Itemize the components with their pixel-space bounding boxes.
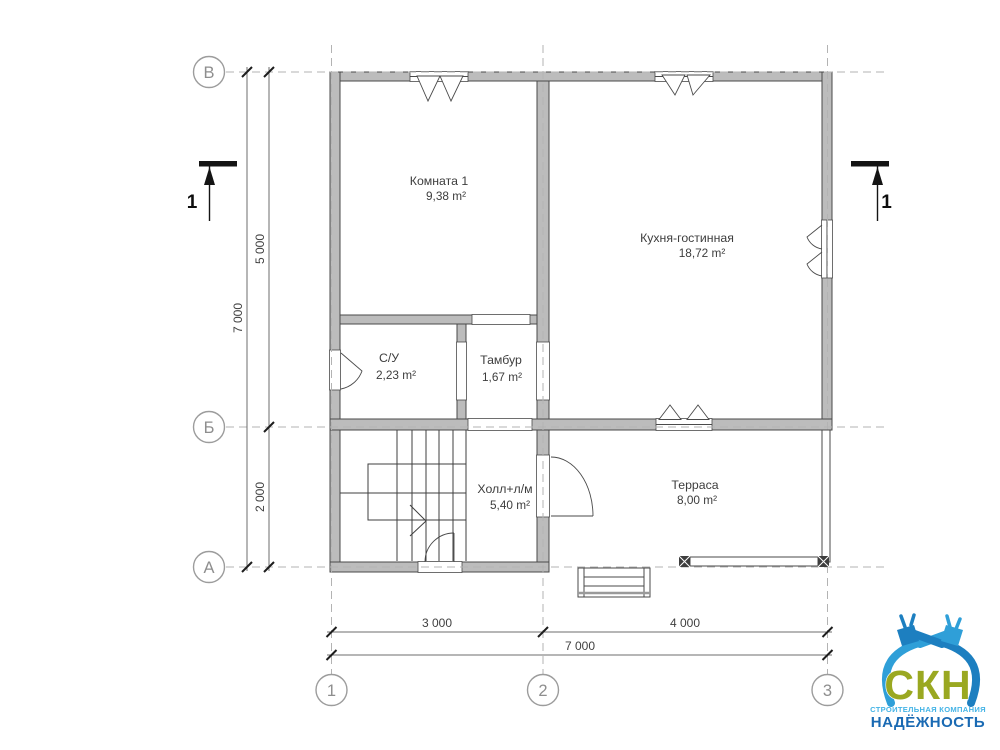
room-label-su: С/У — [379, 351, 399, 365]
axis-label-row-v: В — [203, 64, 214, 82]
dim-label-left-upper: 5 000 — [253, 234, 267, 264]
door-swing-terrace — [551, 457, 593, 516]
window-midlines — [410, 77, 827, 425]
terrace-edge-right — [822, 430, 830, 562]
stair-treads — [397, 430, 466, 561]
axis-grid-dashed — [226, 45, 886, 674]
section-flag-icon — [199, 161, 237, 167]
room-area-tambour: 1,67 m² — [482, 370, 522, 384]
window-casement-icon — [807, 225, 822, 249]
terrace-post-icon — [679, 556, 690, 567]
axis-label-col-2: 2 — [538, 682, 547, 700]
axis-label-col-3: 3 — [823, 682, 832, 700]
window-casement-icon — [807, 252, 822, 276]
walls — [330, 72, 832, 572]
floor-plan-canvas: 7 000 5 000 2 000 3 000 4 000 7 000 В Б … — [0, 0, 1000, 750]
room-area-room1: 9,38 m² — [426, 189, 466, 203]
terrace-edge-bottom — [690, 557, 818, 566]
window-sash-icon — [440, 76, 463, 101]
room-label-hall: Холл+л/м — [477, 482, 532, 496]
door-opening-tambour-hall — [468, 419, 532, 431]
wall-axis-b-horizontal — [330, 419, 832, 430]
dimensions-bottom: 3 000 4 000 7 000 — [327, 616, 833, 660]
terrace-post-icon — [818, 556, 829, 567]
company-logo: СКН СТРОИТЕЛЬНАЯ КОМПАНИЯ НАДЁЖНОСТЬ — [870, 615, 986, 731]
tool-claw-right — [947, 616, 960, 629]
window-sash-icon — [687, 405, 709, 420]
tool-claw-left — [901, 615, 914, 627]
room-label-tambour: Тамбур — [480, 353, 522, 367]
dim-label-left-total: 7 000 — [231, 303, 245, 333]
staircase — [340, 430, 466, 561]
logo-abbr: СКН — [884, 662, 971, 708]
terrace-structure — [578, 430, 830, 597]
room-label-terrace: Терраса — [671, 478, 718, 492]
section-label-left: 1 — [187, 192, 198, 213]
floor-plan-drawing: 7 000 5 000 2 000 3 000 4 000 7 000 В Б … — [0, 0, 1000, 750]
wall-exterior-top — [330, 72, 832, 81]
section-label-right: 1 — [881, 192, 892, 213]
room-labels: Комната 1 9,38 m² Кухня-гостинная 18,72 … — [376, 174, 734, 512]
section-marker-right: 1 — [851, 161, 892, 221]
dimensions-left: 7 000 5 000 2 000 — [231, 67, 274, 572]
section-flag-icon — [851, 161, 889, 167]
dim-label-bottom-right: 4 000 — [670, 616, 700, 630]
window-sash-icon — [687, 75, 710, 95]
door-opening-su-tambour — [457, 342, 467, 400]
room-area-su: 2,23 m² — [376, 368, 416, 382]
door-opening-tambour-room1 — [472, 315, 530, 325]
window-sash-icon — [662, 75, 685, 95]
logo-company-name: НАДЁЖНОСТЬ — [871, 714, 985, 731]
window-casement-su-icon — [341, 353, 362, 389]
section-arrow-icon — [204, 167, 215, 185]
dim-label-left-lower: 2 000 — [253, 482, 267, 512]
room-label-room1: Комната 1 — [410, 174, 469, 188]
window-sash-icon — [417, 76, 440, 101]
room-label-kitchen: Кухня-гостинная — [640, 231, 734, 245]
axis-label-row-b: Б — [204, 419, 215, 437]
window-sash-icon — [659, 405, 681, 420]
room-area-terrace: 8,00 m² — [677, 493, 717, 507]
logo-tagline: СТРОИТЕЛЬНАЯ КОМПАНИЯ — [870, 705, 986, 714]
dim-label-bottom-left: 3 000 — [422, 616, 452, 630]
exterior-steps — [578, 568, 650, 597]
room-area-hall: 5,40 m² — [490, 498, 530, 512]
section-marker-left: 1 — [187, 161, 237, 221]
axis-label-row-a: А — [203, 559, 214, 577]
dim-label-bottom-total: 7 000 — [565, 639, 595, 653]
room-area-kitchen: 18,72 m² — [679, 246, 726, 260]
axis-label-col-1: 1 — [327, 682, 336, 700]
section-arrow-icon — [872, 167, 883, 185]
